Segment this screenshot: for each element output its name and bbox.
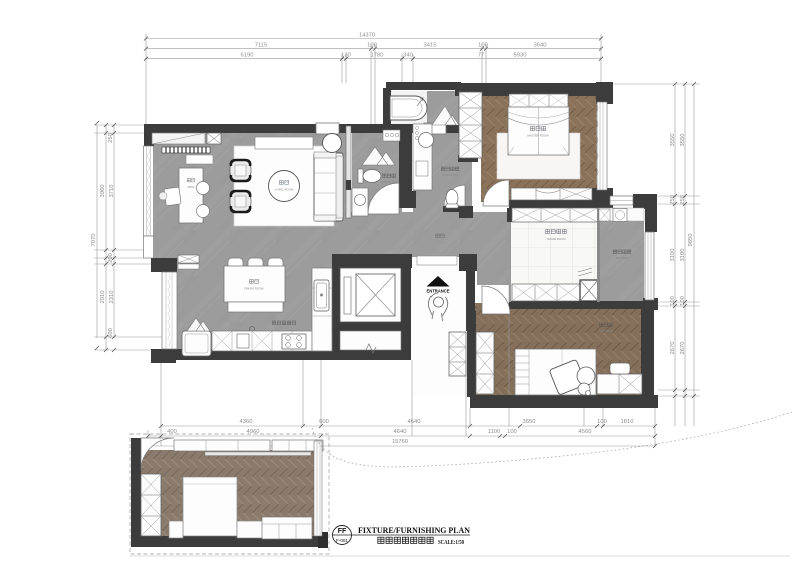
svg-text:1100: 1100 bbox=[488, 429, 500, 435]
svg-text:CORRIDOR: CORRIDOR bbox=[433, 240, 447, 244]
svg-text:ENTRANCE: ENTRANCE bbox=[427, 289, 450, 294]
svg-text:4560: 4560 bbox=[579, 429, 592, 435]
svg-text:77: 77 bbox=[478, 53, 484, 59]
svg-text:2670: 2670 bbox=[670, 342, 676, 355]
svg-text:100: 100 bbox=[478, 43, 488, 49]
svg-text:7070: 7070 bbox=[91, 234, 97, 247]
svg-text:2910: 2910 bbox=[100, 291, 106, 304]
svg-text:BATH ROOM: BATH ROOM bbox=[381, 180, 397, 184]
svg-text:7115: 7115 bbox=[255, 43, 267, 49]
svg-text:4360: 4360 bbox=[240, 419, 253, 425]
svg-text:600: 600 bbox=[319, 419, 329, 425]
svg-text:15760: 15760 bbox=[392, 439, 408, 445]
svg-text:3100: 3100 bbox=[680, 249, 686, 262]
svg-text:SCALE:1/50: SCALE:1/50 bbox=[438, 540, 464, 546]
svg-text:600: 600 bbox=[108, 328, 114, 338]
svg-text:5930: 5930 bbox=[514, 53, 527, 59]
svg-text:3710: 3710 bbox=[109, 185, 115, 198]
svg-text:DINING ROOM: DINING ROOM bbox=[244, 287, 264, 291]
svg-text:200: 200 bbox=[108, 253, 114, 263]
svg-text:130: 130 bbox=[341, 53, 351, 59]
svg-text:TATAMI ROOM: TATAMI ROOM bbox=[546, 237, 566, 241]
svg-text:1810: 1810 bbox=[621, 419, 634, 425]
svg-text:340: 340 bbox=[403, 53, 413, 59]
svg-text:100: 100 bbox=[680, 296, 686, 306]
svg-text:DESK: DESK bbox=[187, 185, 194, 189]
svg-text:4640: 4640 bbox=[394, 429, 407, 435]
svg-text:BALCONY: BALCONY bbox=[616, 256, 629, 260]
svg-text:BED ROOM: BED ROOM bbox=[599, 329, 613, 333]
svg-text:3640: 3640 bbox=[534, 43, 547, 49]
svg-text:100: 100 bbox=[367, 43, 377, 49]
svg-text:3100: 3100 bbox=[670, 249, 676, 262]
svg-text:250: 250 bbox=[108, 133, 114, 143]
svg-text:4640: 4640 bbox=[408, 419, 421, 425]
svg-text:100: 100 bbox=[507, 429, 517, 435]
svg-text:9850: 9850 bbox=[688, 234, 694, 247]
svg-text:3650: 3650 bbox=[523, 419, 536, 425]
svg-text:3960: 3960 bbox=[100, 185, 106, 198]
svg-text:3550: 3550 bbox=[670, 134, 676, 147]
svg-text:2310: 2310 bbox=[109, 291, 115, 304]
svg-text:3550: 3550 bbox=[680, 134, 686, 147]
svg-text:MASTER ROOM: MASTER ROOM bbox=[527, 134, 549, 138]
svg-text:F-001: F-001 bbox=[336, 538, 348, 543]
svg-text:FIXTURE/FURNISHING PLAN: FIXTURE/FURNISHING PLAN bbox=[358, 525, 471, 535]
svg-text:6190: 6190 bbox=[241, 53, 254, 59]
svg-text:1780: 1780 bbox=[371, 53, 384, 59]
svg-text:100: 100 bbox=[670, 296, 676, 306]
svg-text:FF: FF bbox=[338, 528, 347, 535]
svg-text:BATH ROOM: BATH ROOM bbox=[442, 173, 458, 177]
svg-text:2670: 2670 bbox=[680, 342, 686, 355]
svg-text:14370: 14370 bbox=[359, 33, 375, 39]
svg-text:3415: 3415 bbox=[424, 43, 437, 49]
svg-text:LIVING ROOM: LIVING ROOM bbox=[275, 188, 294, 192]
